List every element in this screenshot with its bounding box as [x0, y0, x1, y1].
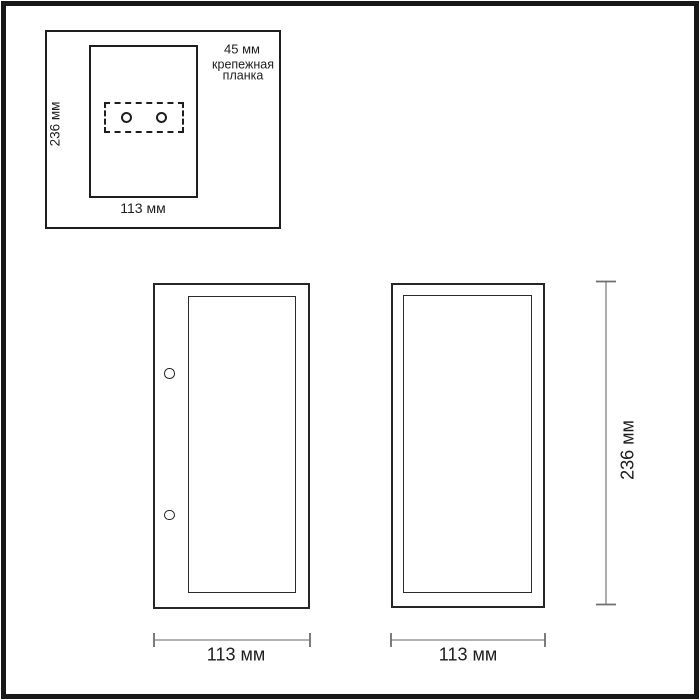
inset-height-dimension-label: 236 мм [48, 102, 63, 147]
side-view-width-label: 113 мм [439, 645, 497, 666]
mounting-hole-right [156, 112, 167, 123]
front-view-screw-top [164, 368, 175, 379]
mounting-hole-left [121, 112, 132, 123]
technical-drawing: 236 мм 113 мм 45 мм крепежная планка 113… [0, 0, 700, 700]
front-view-screw-bottom [164, 510, 175, 521]
front-view-width-label: 113 мм [207, 645, 265, 666]
mounting-bracket-label: крепежная планка [212, 59, 274, 82]
inset-width-dimension-label: 113 мм [120, 200, 165, 216]
hole-spacing-dimension-label: 45 мм [224, 42, 260, 57]
front-view-glass-panel [188, 296, 296, 594]
mounting-bracket-outline [104, 102, 184, 133]
mounting-bracket-label-line2: планка [212, 71, 274, 83]
side-view-glass-panel [403, 295, 532, 593]
side-view-height-label: 236 мм [618, 420, 639, 480]
